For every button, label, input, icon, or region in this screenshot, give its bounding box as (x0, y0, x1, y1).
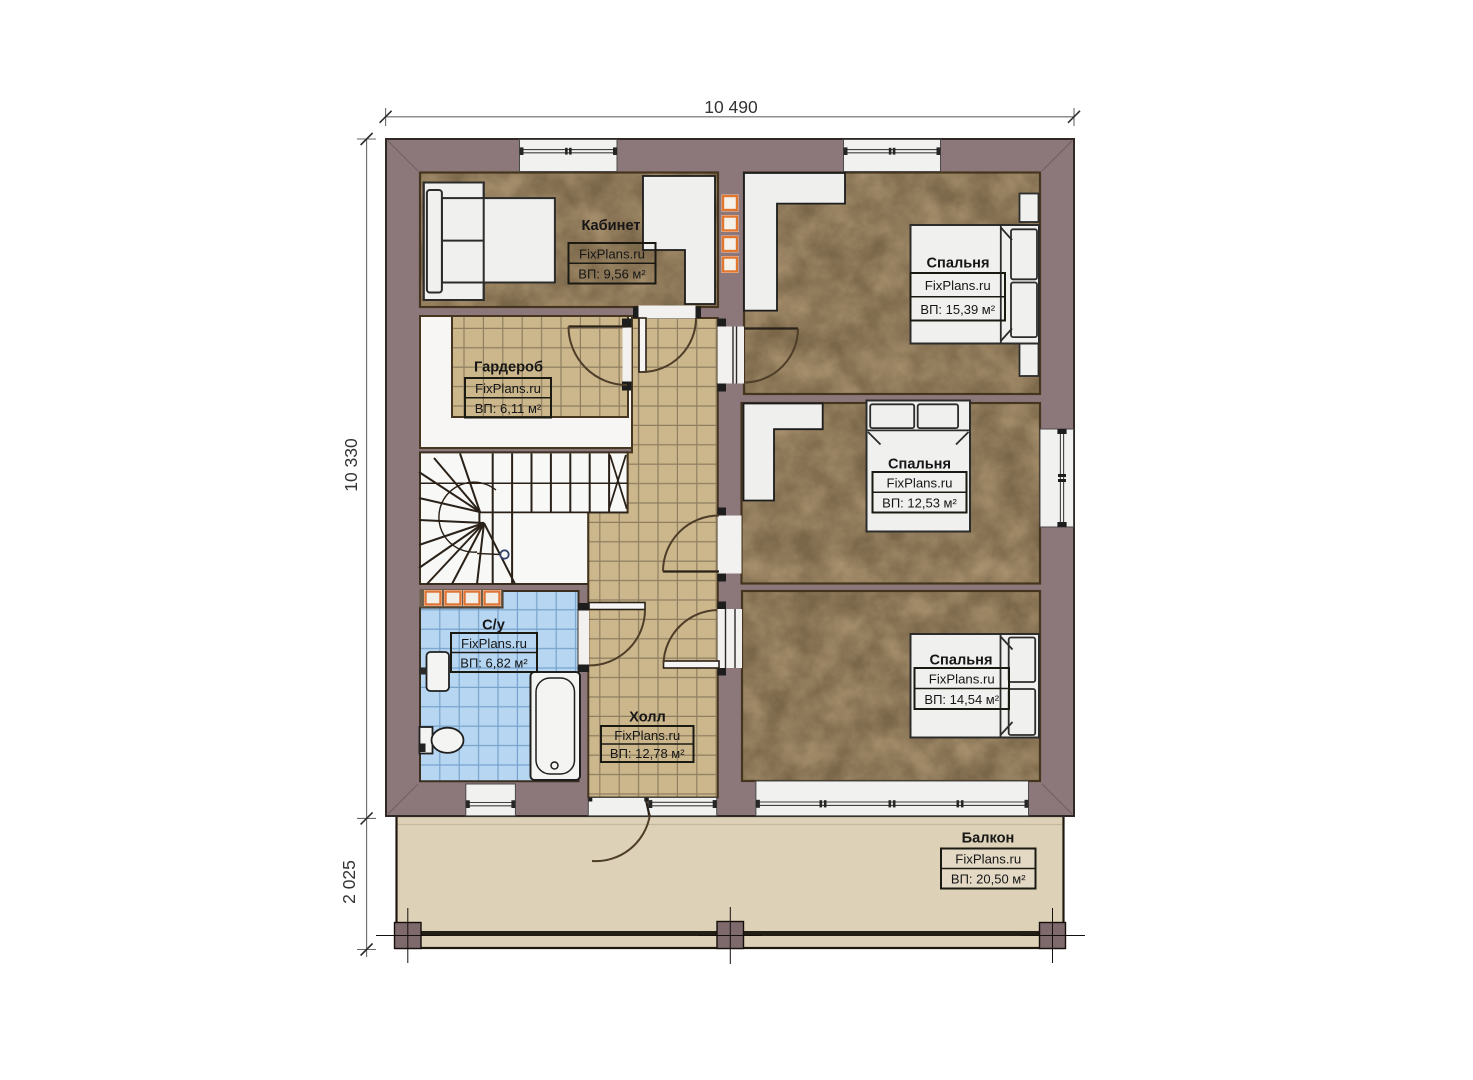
svg-text:FixPlans.ru: FixPlans.ru (475, 381, 541, 396)
svg-text:2 025: 2 025 (339, 860, 359, 904)
svg-text:ВП: 9,56 м²: ВП: 9,56 м² (578, 267, 646, 282)
svg-text:10 490: 10 490 (704, 97, 758, 117)
svg-text:FixPlans.ru: FixPlans.ru (461, 636, 527, 651)
svg-text:Спальня: Спальня (929, 653, 992, 669)
svg-text:ВП: 6,82 м²: ВП: 6,82 м² (460, 655, 528, 670)
svg-text:FixPlans.ru: FixPlans.ru (955, 852, 1021, 867)
svg-text:FixPlans.ru: FixPlans.ru (614, 728, 680, 743)
svg-text:FixPlans.ru: FixPlans.ru (929, 671, 995, 686)
svg-text:ВП: 12,78 м²: ВП: 12,78 м² (610, 746, 685, 761)
svg-text:FixPlans.ru: FixPlans.ru (887, 475, 953, 490)
svg-text:Холл: Холл (629, 710, 666, 726)
svg-text:10 330: 10 330 (341, 438, 361, 492)
svg-text:ВП: 15,39 м²: ВП: 15,39 м² (920, 302, 995, 317)
svg-text:ВП: 12,53 м²: ВП: 12,53 м² (882, 496, 957, 511)
svg-text:ВП: 20,50 м²: ВП: 20,50 м² (951, 872, 1026, 887)
svg-text:FixPlans.ru: FixPlans.ru (925, 278, 991, 293)
svg-text:Спальня: Спальня (888, 457, 951, 473)
svg-text:С/у: С/у (482, 618, 506, 634)
svg-text:Балкон: Балкон (962, 831, 1015, 847)
svg-text:Кабинет: Кабинет (581, 218, 640, 234)
svg-text:Спальня: Спальня (926, 256, 989, 272)
svg-text:Гардероб: Гардероб (474, 360, 543, 376)
svg-text:ВП: 6,11 м²: ВП: 6,11 м² (475, 401, 542, 416)
svg-text:ВП: 14,54 м²: ВП: 14,54 м² (924, 692, 999, 707)
svg-text:FixPlans.ru: FixPlans.ru (579, 246, 645, 261)
